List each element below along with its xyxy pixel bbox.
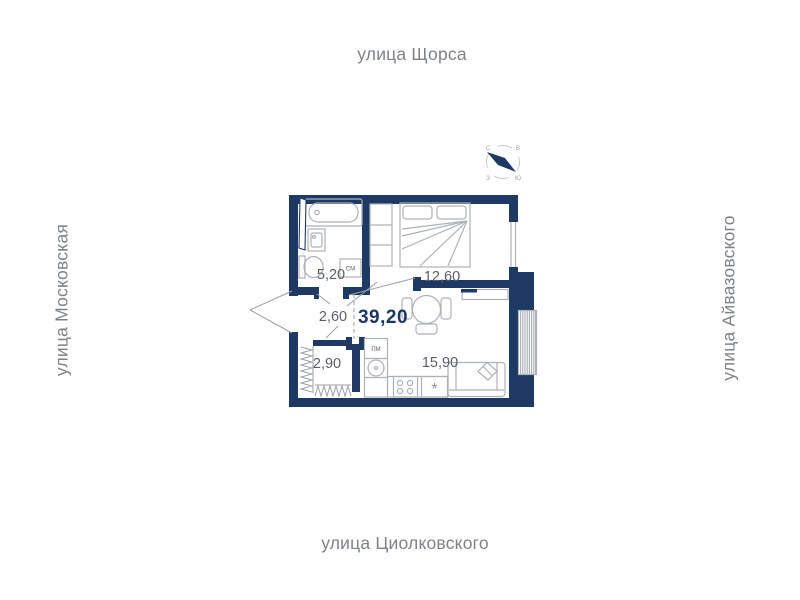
closet-area: 2,90 (313, 356, 341, 372)
dining-table-icon (413, 296, 441, 324)
compass-south: Ю (515, 176, 521, 182)
dishwasher-label: ПМ (371, 347, 380, 353)
burner (397, 388, 402, 393)
bathtub-inner (309, 203, 358, 222)
bathroom-area: 5,20 (317, 267, 345, 283)
total-area: 39,20 (358, 307, 408, 328)
kitchen-living-area: 15,90 (422, 355, 458, 371)
compass-east: В (516, 146, 520, 152)
wall-left-lower (289, 332, 298, 407)
pillow (403, 206, 432, 219)
hallway-area: 2,60 (319, 309, 347, 325)
hanger-rail-horizontal (315, 386, 351, 396)
wall-bottom (289, 398, 518, 407)
wall-jamb-left (314, 287, 319, 299)
kitchen-sink-drain (375, 367, 378, 370)
chair (441, 298, 451, 319)
compass-needle-icon (487, 152, 516, 172)
wall-divider-endcap (413, 277, 421, 291)
hallway-leader-line (326, 326, 338, 338)
compass: С В З Ю (486, 146, 521, 183)
entrance-door-line (250, 310, 292, 333)
floor-plan: С В З Ю (0, 0, 800, 600)
bathtub-drain (315, 210, 319, 214)
closet-door-leaf (352, 344, 360, 392)
kitchen-sink-icon (368, 360, 384, 376)
wall-bathroom-right (362, 204, 370, 290)
bedroom-door-swing (349, 278, 415, 295)
washing-machine-label: СМ (346, 267, 355, 273)
bedroom-window-gap (509, 222, 518, 267)
burner (397, 380, 402, 385)
wardrobe-icon (370, 204, 392, 266)
freezer-symbol: * (431, 381, 437, 398)
wall-pilaster-bottom (518, 375, 534, 407)
chair (416, 324, 437, 334)
bathroom: СМ (299, 198, 362, 278)
wall-left-upper (289, 195, 298, 296)
hanger-rail-vertical (301, 347, 312, 392)
bedroom-area: 12,60 (424, 269, 460, 285)
stove-icon (394, 377, 418, 398)
sofa-pillow-fold (483, 367, 492, 376)
blanket-folds (402, 221, 467, 266)
sink-faucet (313, 236, 316, 239)
wall-pilaster-mid (518, 272, 534, 310)
wall-right-upper (509, 195, 518, 222)
pillow (437, 206, 466, 219)
bedroom (370, 203, 470, 267)
tv-icon (461, 289, 477, 293)
compass-north: С (486, 146, 491, 152)
bathroom-door-leaf (299, 198, 306, 250)
living-window (519, 311, 537, 375)
door-frame-left (346, 337, 352, 350)
compass-west: З (486, 176, 490, 182)
sink-basin (311, 233, 322, 247)
entrance-door-line (250, 291, 292, 310)
wall-closet-top (313, 340, 347, 346)
area-labels: 5,20 12,60 2,60 39,20 2,90 15,90 (313, 267, 460, 372)
bedroom-window (509, 222, 518, 267)
wall-jamb-right (343, 287, 349, 299)
burner (407, 388, 412, 393)
burner (407, 380, 412, 385)
